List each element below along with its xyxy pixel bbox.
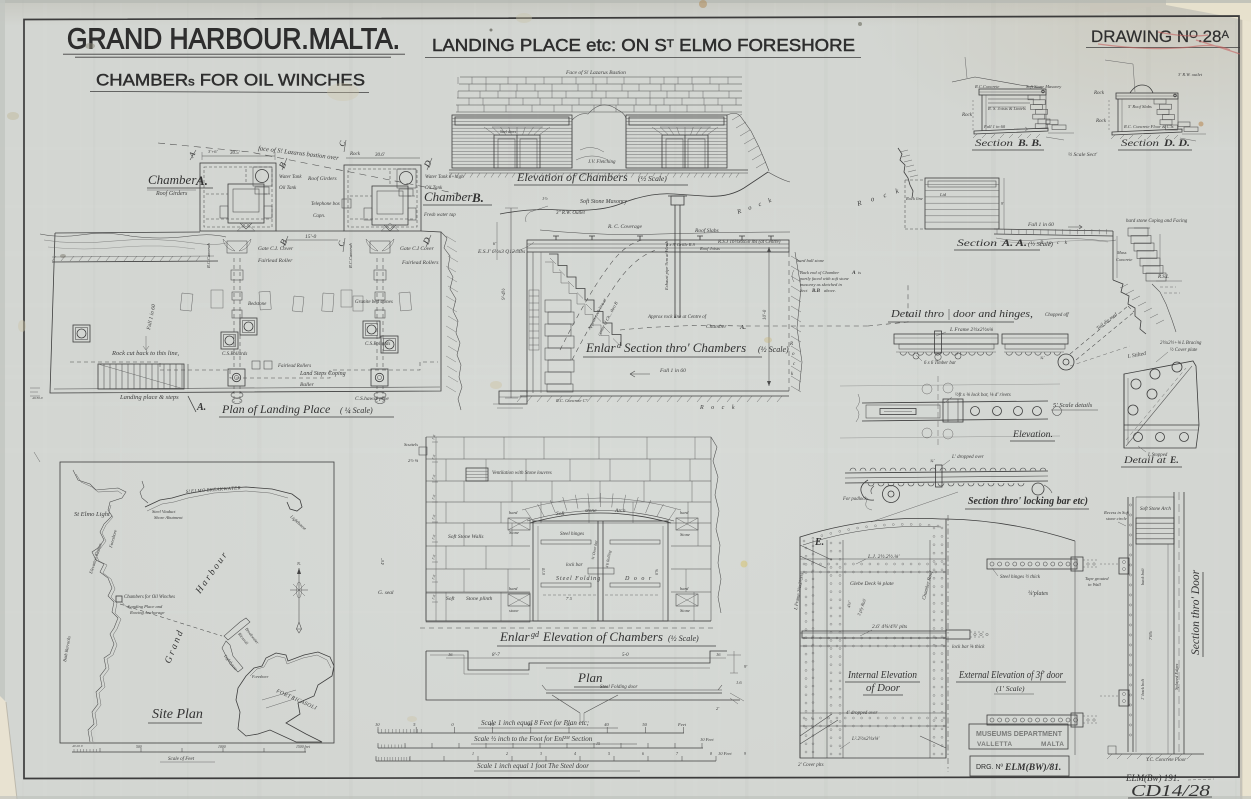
svg-text:R. S. Joists & Lintels: R. S. Joists & Lintels xyxy=(987,106,1026,111)
svg-text:masonry as sketched in: masonry as sketched in xyxy=(800,282,843,287)
svg-text:3" R.W. Outlet: 3" R.W. Outlet xyxy=(556,211,585,216)
svg-text:R. C. Coverage: R. C. Coverage xyxy=(607,224,642,230)
svg-text:partly faced with soft stone: partly faced with soft stone xyxy=(799,276,849,281)
svg-text:10: 10 xyxy=(375,722,380,727)
svg-text:Baller: Baller xyxy=(300,382,315,388)
svg-text:7'.5: 7'.5 xyxy=(566,596,572,601)
svg-text:Fresh water tap: Fresh water tap xyxy=(423,213,456,218)
svg-text:Glebe Deck ⅝ plate: Glebe Deck ⅝ plate xyxy=(850,581,894,587)
svg-text:Stone plinth: Stone plinth xyxy=(466,596,493,602)
svg-text:Elevation of Chambers: Elevation of Chambers xyxy=(516,170,628,184)
svg-text:10: 10 xyxy=(490,722,495,727)
svg-text:5' Roof Slabs: 5' Roof Slabs xyxy=(1128,104,1152,109)
svg-text:Stone: Stone xyxy=(509,530,519,535)
svg-text:40.30.0: 40.30.0 xyxy=(32,396,43,400)
svg-text:1' back bolt: 1' back bolt xyxy=(1140,678,1145,700)
svg-text:Detail thro: Detail thro xyxy=(890,309,944,320)
svg-text:Soft Stone Masonry: Soft Stone Masonry xyxy=(1026,84,1061,89)
svg-text:Chambers for Oil Winches: Chambers for Oil Winches xyxy=(124,595,175,600)
svg-text:Soft Stone Masonry: Soft Stone Masonry xyxy=(580,198,627,205)
svg-text:Rock: Rock xyxy=(1095,119,1107,124)
svg-text:Water Tank 6+high: Water Tank 6+high xyxy=(425,175,464,180)
svg-text:1000: 1000 xyxy=(218,745,226,749)
svg-text:Ventilation with Stone louvres: Ventilation with Stone louvres xyxy=(492,471,552,476)
svg-text:Chopped off: Chopped off xyxy=(1045,313,1069,318)
svg-text:Fairlead Rollers: Fairlead Rollers xyxy=(277,364,311,369)
svg-text:B. B.: B. B. xyxy=(1017,138,1042,148)
svg-text:Section thro' Chambers: Section thro' Chambers xyxy=(624,340,746,355)
svg-text:Rock: Rock xyxy=(1093,91,1105,96)
svg-text:30.6': 30.6' xyxy=(375,153,386,158)
svg-text:Telephone box: Telephone box xyxy=(311,202,341,207)
svg-text:hard: hard xyxy=(680,510,689,515)
svg-text:3'+6': 3'+6' xyxy=(208,149,218,154)
svg-text:Roof Girders: Roof Girders xyxy=(155,190,188,197)
svg-text:R.C.Concrete: R.C.Concrete xyxy=(974,84,999,89)
svg-text:Section: Section xyxy=(975,138,1014,148)
svg-text:6'10: 6'10 xyxy=(541,568,546,575)
svg-text:CHAMBERs FOR OIL WINCHES: CHAMBERs FOR OIL WINCHES xyxy=(96,71,365,90)
svg-text:Tape grouted: Tape grouted xyxy=(1085,576,1109,581)
svg-text:Fall 1 in 60: Fall 1 in 60 xyxy=(659,368,686,374)
svg-text:R.C.Camerah: R.C.Camerah xyxy=(206,243,211,270)
svg-text:Steel Viaduct: Steel Viaduct xyxy=(152,509,176,514)
svg-text:C.S.Bollards: C.S.Bollards xyxy=(365,342,390,347)
svg-text:Water Tank: Water Tank xyxy=(279,175,302,180)
svg-text:16: 16 xyxy=(716,652,721,657)
svg-text:½ Cover plate: ½ Cover plate xyxy=(1170,348,1198,353)
svg-text:2½x2½+⅛ L Bracing: 2½x2½+⅛ L Bracing xyxy=(1160,341,1202,346)
svg-text:External Elevation of 3f' door: External Elevation of 3f' door xyxy=(958,670,1063,681)
svg-text:6: 6 xyxy=(642,751,644,756)
svg-text:stone circle: stone circle xyxy=(1106,516,1127,521)
svg-text:6'⅞: 6'⅞ xyxy=(654,569,659,575)
svg-text:A.: A. xyxy=(739,324,746,331)
svg-text:Enlar: Enlar xyxy=(499,629,531,644)
svg-text:4'6": 4'6" xyxy=(380,558,385,565)
svg-text:Chamber: Chamber xyxy=(148,172,197,187)
svg-text:9: 9 xyxy=(744,751,746,756)
svg-text:is: is xyxy=(858,270,861,275)
svg-text:Landing place & steps: Landing place & steps xyxy=(119,394,179,401)
svg-text:2½ ⅜: 2½ ⅜ xyxy=(408,458,419,463)
svg-text:Shore Abutment: Shore Abutment xyxy=(154,515,183,520)
svg-text:ELM(BW)/81.: ELM(BW)/81. xyxy=(1004,762,1061,773)
svg-text:Chamber: Chamber xyxy=(424,189,473,204)
svg-text:back bolt: back bolt xyxy=(1140,568,1145,585)
svg-text:door and hinges,: door and hinges, xyxy=(953,309,1033,320)
svg-text:Soft Stone Arch: Soft Stone Arch xyxy=(1140,507,1171,512)
svg-text:of Door: of Door xyxy=(866,683,900,694)
svg-text:2: 2 xyxy=(506,751,508,756)
svg-text:Elevation.: Elevation. xyxy=(1012,430,1053,440)
svg-text:(1' Scale): (1' Scale) xyxy=(996,684,1025,693)
svg-text:Steel doors: Steel doors xyxy=(500,130,517,134)
svg-text:Rock cut back to this line,: Rock cut back to this line, xyxy=(111,350,180,357)
svg-text:DRG. Nº: DRG. Nº xyxy=(976,764,1004,771)
svg-text:Landing Place and: Landing Place and xyxy=(127,604,163,609)
svg-text:Section thro' Door: Section thro' Door xyxy=(1190,569,1202,655)
svg-text:½ft x ⅛ lock bar, ⅛ d' rivets: ½ft x ⅛ lock bar, ⅛ d' rivets xyxy=(955,393,1011,398)
svg-text:Section: Section xyxy=(957,239,997,249)
svg-text:Scale ½ inch to the Foot for E: Scale ½ inch to the Foot for Enl²ᴹ Secti… xyxy=(474,735,593,743)
svg-text:L' dropped over: L' dropped over xyxy=(951,455,984,460)
svg-text:6 x 6 Timber bar: 6 x 6 Timber bar xyxy=(924,361,956,366)
svg-text:2' Cover plts: 2' Cover plts xyxy=(798,763,824,768)
svg-text:15'-0: 15'-0 xyxy=(305,234,317,240)
svg-text:15: 15 xyxy=(596,741,600,746)
svg-text:Exhaust pipe 9cm at Winch: Exhaust pipe 9cm at Winch xyxy=(664,240,669,291)
svg-text:Detail at: Detail at xyxy=(1123,456,1167,466)
svg-text:MUSEUMS DEPARTMENT: MUSEUMS DEPARTMENT xyxy=(976,729,1062,738)
svg-text:Soft Stone Walls: Soft Stone Walls xyxy=(448,533,484,540)
svg-text:C.S.hawse pipe: C.S.hawse pipe xyxy=(355,396,389,402)
svg-text:Gate C.I Cover: Gate C.I Cover xyxy=(400,246,435,252)
svg-text:Plan: Plan xyxy=(577,670,603,685)
svg-text:Soft: Soft xyxy=(556,510,565,517)
svg-text:hard: hard xyxy=(509,510,518,515)
svg-text:Scale 1 inch equal 1 foot The: Scale 1 inch equal 1 foot The Steel door xyxy=(477,762,589,770)
svg-text:E.S.J' 6½x3 Q12.5lbs: E.S.J' 6½x3 Q12.5lbs xyxy=(477,248,525,255)
svg-text:( ¼ Scale): ( ¼ Scale) xyxy=(340,406,373,415)
svg-text:hard: hard xyxy=(680,586,689,591)
svg-text:Steel Folding door: Steel Folding door xyxy=(600,685,638,690)
svg-text:¼'plates: ¼'plates xyxy=(1028,591,1049,597)
svg-text:DRAWING NO.28A: DRAWING NO.28A xyxy=(1091,28,1230,46)
svg-text:Back end of Chamber: Back end of Chamber xyxy=(800,270,839,275)
svg-text:lock bar ⅝ thick: lock bar ⅝ thick xyxy=(952,645,985,650)
svg-text:Recess in Soft: Recess in Soft xyxy=(1103,510,1130,515)
svg-text:lock bar: lock bar xyxy=(566,563,583,568)
svg-text:Concrete: Concrete xyxy=(1116,257,1132,262)
svg-text:1: 1 xyxy=(472,751,474,756)
svg-text:Capn.: Capn. xyxy=(313,214,325,219)
svg-text:Fairlead Rollers: Fairlead Rollers xyxy=(401,260,439,266)
svg-text:R.C.Camerah: R.C.Camerah xyxy=(348,243,353,270)
svg-text:R.S.J 16½x6x50 lbs (at Centre): R.S.J 16½x6x50 lbs (at Centre) xyxy=(717,240,781,245)
svg-text:50: 50 xyxy=(642,722,647,727)
svg-text:Roof Joists: Roof Joists xyxy=(699,246,720,251)
svg-text:Lid: Lid xyxy=(939,192,947,197)
svg-text:A.: A. xyxy=(195,173,208,188)
svg-text:500: 500 xyxy=(136,745,142,749)
svg-text:MALTA: MALTA xyxy=(1041,741,1064,748)
svg-text:(½ Scale): (½ Scale) xyxy=(758,345,789,354)
svg-text:Plan of Landing Place: Plan of Landing Place xyxy=(221,402,331,416)
svg-text:Foreshore: Foreshore xyxy=(251,674,269,679)
svg-text:L².2½x2½x⅛': L².2½x2½x⅛' xyxy=(851,736,880,742)
svg-text:Fall 1 in 60: Fall 1 in 60 xyxy=(1027,222,1054,228)
svg-text:Roof Girders: Roof Girders xyxy=(307,175,337,182)
svg-text:stone: stone xyxy=(509,608,519,613)
svg-text:B.: B. xyxy=(471,190,484,205)
svg-text:R.C. Concrete Floor & C'ls: R.C. Concrete Floor & C'ls xyxy=(1123,124,1174,129)
svg-text:L Frame 2½x2½x⅛: L Frame 2½x2½x⅛ xyxy=(949,326,993,333)
svg-text:hard stone Coping and Facing: hard stone Coping and Facing xyxy=(1126,219,1188,224)
svg-text:Scale 1 inch equal 8 Feet for: Scale 1 inch equal 8 Feet for Plan etc; xyxy=(481,719,589,727)
svg-text:Bedstone: Bedstone xyxy=(248,302,267,307)
svg-text:40 20 0: 40 20 0 xyxy=(72,744,83,748)
svg-text:Face of S! Lazarus Bastion: Face of S! Lazarus Bastion xyxy=(565,69,626,76)
svg-text:stone: stone xyxy=(585,508,597,514)
svg-text:Splayed Edges: Splayed Edges xyxy=(1174,663,1179,690)
svg-text:Gate C.I. Cover: Gate C.I. Cover xyxy=(258,246,294,252)
svg-text:Oil Tank: Oil Tank xyxy=(425,186,443,191)
svg-text:L.J. 2½.2½.⅛': L.J. 2½.2½.⅛' xyxy=(867,553,900,560)
svg-text:20: 20 xyxy=(528,722,533,727)
svg-text:gd: gd xyxy=(531,630,540,639)
svg-text:Enlar: Enlar xyxy=(585,340,617,355)
svg-text:GRAND HARBOUR.MALTA.: GRAND HARBOUR.MALTA. xyxy=(67,24,400,56)
svg-text:Granite bed stones: Granite bed stones xyxy=(355,300,393,305)
svg-text:Steel hinges ½ thick: Steel hinges ½ thick xyxy=(1000,575,1041,580)
svg-text:J.V. Fletching: J.V. Fletching xyxy=(588,160,616,165)
svg-text:Mass: Mass xyxy=(1116,250,1127,255)
svg-text:9'-4½: 9'-4½ xyxy=(502,288,507,300)
svg-text:Land Steps Coping: Land Steps Coping xyxy=(299,371,346,377)
svg-text:Roof Slabs: Roof Slabs xyxy=(694,227,719,234)
svg-text:8'-7: 8'-7 xyxy=(492,653,500,658)
svg-text:N.: N. xyxy=(296,561,301,566)
svg-text:Arch: Arch xyxy=(614,508,626,514)
svg-text:Internal Elevation: Internal Elevation xyxy=(847,670,917,681)
svg-text:40: 40 xyxy=(604,722,609,727)
svg-text:VALLETTA: VALLETTA xyxy=(977,741,1012,748)
svg-text:E.: E. xyxy=(1169,456,1179,466)
svg-text:A. A.: A. A. xyxy=(1001,239,1027,249)
svg-text:E.: E. xyxy=(814,537,824,548)
svg-text:G. seal: G. seal xyxy=(378,590,394,596)
svg-text:Stone: Stone xyxy=(680,532,690,537)
svg-text:R: R xyxy=(789,342,793,347)
svg-text:D o o r: D o o r xyxy=(624,576,653,582)
svg-text:Steel hinges: Steel hinges xyxy=(560,532,584,537)
svg-text:Rock: Rock xyxy=(349,152,361,157)
svg-text:Fairlead Roller: Fairlead Roller xyxy=(257,258,293,264)
svg-text:Oil Tank: Oil Tank xyxy=(279,186,297,191)
svg-text:(½ Scale): (½ Scale) xyxy=(668,634,699,643)
svg-text:1½: 1½ xyxy=(542,196,548,201)
svg-text:Chamber: Chamber xyxy=(706,324,727,330)
svg-text:30.5': 30.5' xyxy=(230,151,241,156)
svg-text:St Elmo Light: St Elmo Light xyxy=(74,511,110,518)
svg-text:Feet: Feet xyxy=(677,722,687,727)
svg-text:D. D.: D. D. xyxy=(1163,138,1190,148)
svg-text:For padlock: For padlock xyxy=(842,497,867,502)
svg-text:R.S.L: R.S.L xyxy=(1157,275,1169,280)
svg-text:Rock: Rock xyxy=(961,113,973,118)
svg-text:4: 4 xyxy=(574,751,576,756)
svg-text:C.S.Bollards: C.S.Bollards xyxy=(222,352,247,357)
svg-text:3: 3 xyxy=(540,751,542,756)
svg-text:Elevation of Chambers: Elevation of Chambers xyxy=(542,629,663,644)
svg-text:1500 feet: 1500 feet xyxy=(296,745,311,749)
svg-text:Section: Section xyxy=(1121,138,1160,148)
svg-text:16: 16 xyxy=(448,652,453,657)
svg-text:in Wall: in Wall xyxy=(1088,582,1101,587)
svg-text:A: A xyxy=(851,270,856,276)
svg-text:Rock line: Rock line xyxy=(905,196,923,201)
svg-text:Steel Folding: Steel Folding xyxy=(556,576,601,582)
svg-text:10'-0: 10'-0 xyxy=(763,309,768,320)
svg-text:A.: A. xyxy=(196,402,206,413)
svg-text:7'6⅞: 7'6⅞ xyxy=(1148,631,1153,640)
svg-text:LANDING PLACE etc: ON ST ELMO: LANDING PLACE etc: ON ST ELMO FORESHORE xyxy=(432,35,855,55)
svg-text:4 x 3' Grille R.S: 4 x 3' Grille R.S xyxy=(666,242,696,247)
svg-text:(½ Scale): (½ Scale) xyxy=(1028,241,1053,248)
svg-text:10 Feet: 10 Feet xyxy=(718,751,732,756)
svg-text:Fall 1 in 60: Fall 1 in 60 xyxy=(983,124,1006,129)
svg-text:Scuttels: Scuttels xyxy=(404,442,418,447)
svg-text:Sect: Sect xyxy=(800,288,808,293)
svg-text:Y.C. Concrete Floor: Y.C. Concrete Floor xyxy=(1146,758,1186,763)
svg-text:Section thro' locking bar etc): Section thro' locking bar etc) xyxy=(968,496,1088,507)
svg-text:8: 8 xyxy=(710,751,712,756)
svg-text:9': 9' xyxy=(1001,201,1004,206)
svg-text:R.C. Concrete C°: R.C. Concrete C° xyxy=(555,398,588,403)
svg-text:5' Scale details: 5' Scale details xyxy=(1053,402,1093,409)
svg-text:2.6' 4¾/4¾' plts: 2.6' 4¾/4¾' plts xyxy=(872,623,907,630)
svg-text:5-0: 5-0 xyxy=(622,653,629,658)
svg-text:B.B: B.B xyxy=(811,289,821,294)
svg-text:30: 30 xyxy=(566,722,571,727)
svg-text:hard ball stone: hard ball stone xyxy=(797,258,824,263)
svg-text:Soft: Soft xyxy=(446,595,455,602)
svg-text:above.: above. xyxy=(824,288,836,293)
svg-text:hard: hard xyxy=(509,586,518,591)
svg-text:10 Feet: 10 Feet xyxy=(700,737,714,742)
svg-text:Approx rock line at Centre of: Approx rock line at Centre of xyxy=(647,315,707,320)
svg-text:1.6: 1.6 xyxy=(736,680,742,685)
svg-text:½ Scale Sect': ½ Scale Sect' xyxy=(1068,151,1098,158)
svg-text:4' dropped over: 4' dropped over xyxy=(846,711,877,716)
svg-text:Site Plan: Site Plan xyxy=(152,707,203,722)
svg-text:5: 5 xyxy=(608,751,610,756)
svg-text:3' R.W. outlet: 3' R.W. outlet xyxy=(1178,72,1203,77)
svg-text:(½ Scale): (½ Scale) xyxy=(638,174,667,183)
svg-text:R o c k: R o c k xyxy=(699,405,738,411)
svg-text:Stone: Stone xyxy=(680,608,690,613)
svg-text:Scale of Feet: Scale of Feet xyxy=(168,757,195,762)
svg-text:CD14/28: CD14/28 xyxy=(1131,781,1211,799)
